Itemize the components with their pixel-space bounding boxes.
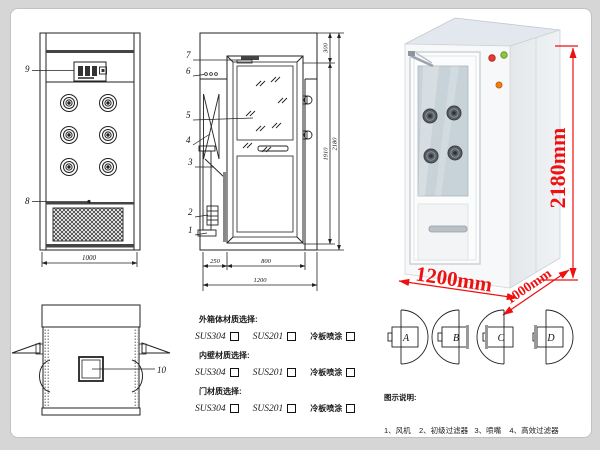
door-jamb [223, 172, 226, 242]
door-lower-panel [237, 156, 293, 232]
indicator-light-red [489, 55, 495, 61]
indicator-light-green [501, 52, 507, 58]
section-view-drawing: 250 800 1200 300 1910 2180 7 6 5 4 [183, 26, 347, 296]
swing-label-c: C [498, 333, 505, 344]
dim-800-label: 800 [261, 258, 272, 265]
nozzle [61, 127, 78, 144]
callout-1: 1 [188, 225, 193, 235]
dim-1910-label: 1910 [323, 147, 330, 161]
material-options-row: SUS304 SUS201 冷板喷涂 [195, 367, 388, 378]
material-group-label: 外箱体材质选择: [199, 314, 388, 325]
callout-4: 4 [186, 135, 191, 145]
nozzle [100, 95, 117, 112]
material-group-label: 内壁材质选择: [199, 350, 388, 361]
fan-unit [204, 94, 220, 159]
callout-10: 10 [157, 365, 167, 375]
top-trim-bar [46, 50, 134, 53]
base-trim-bar [46, 244, 134, 248]
checkbox [346, 332, 355, 341]
door-hinges [303, 96, 312, 139]
door-swing-options: A B C D [385, 302, 585, 366]
top-view-drawing: 10 [8, 296, 183, 430]
swing-label-d: D [546, 333, 555, 344]
indicator-lights [205, 73, 218, 76]
legend-title: 图示说明: [384, 392, 600, 403]
nozzle [100, 127, 117, 144]
material-option: 冷板喷涂 [310, 331, 342, 342]
photo-dim-height: 2180mm [545, 128, 570, 209]
material-group-label: 门材质选择: [199, 386, 388, 397]
callout-5: 5 [186, 110, 191, 120]
material-selection: 外箱体材质选择: SUS304 SUS201 冷板喷涂 内壁材质选择: SUS3… [193, 314, 388, 422]
nozzle [61, 95, 78, 112]
duct-line [205, 159, 225, 178]
dim-1000-label: 1000 [82, 254, 97, 262]
swing-label-a: A [402, 333, 410, 344]
side-wall-hatch [44, 328, 49, 407]
cabinet-body [43, 327, 139, 408]
material-option: 冷板喷涂 [310, 403, 342, 414]
front-view-drawing: 9 8 1000 [20, 26, 185, 274]
dim-250-label: 250 [210, 258, 221, 265]
checkbox [287, 332, 296, 341]
indicator-light-orange [496, 82, 502, 88]
spec-sheet: 9 8 1000 [0, 0, 600, 450]
callout-6: 6 [186, 66, 191, 76]
control-panel [74, 62, 107, 81]
dim-1200-label: 1200 [254, 277, 268, 284]
material-option: 冷板喷涂 [310, 367, 342, 378]
bottom-dimensions [203, 252, 317, 291]
material-option: SUS304 [195, 404, 226, 414]
checkbox [346, 368, 355, 377]
filter-box [207, 206, 218, 225]
material-option: SUS201 [253, 368, 284, 378]
material-option: SUS304 [195, 368, 226, 378]
callout-9: 9 [25, 64, 30, 74]
checkbox [287, 404, 296, 413]
nozzle [61, 159, 78, 176]
nozzle [100, 159, 117, 176]
swing-label-b: B [453, 333, 459, 344]
material-option: SUS201 [253, 404, 284, 414]
callout-7: 7 [186, 50, 191, 60]
product-photo: 2180mm 1200mm 1000mm [385, 8, 598, 330]
checkbox [346, 404, 355, 413]
legend-block: 图示说明: 1、风机 2、初级过滤器 3、喷嘴 4、高效过滤器 5、玻璃视窗 6… [384, 370, 600, 450]
material-options-row: SUS304 SUS201 冷板喷涂 [195, 403, 388, 414]
glass-hatching [243, 77, 287, 152]
door-handle [258, 146, 288, 151]
side-wall-hatch [133, 328, 138, 407]
glass-window [237, 66, 293, 140]
callout-3: 3 [187, 157, 193, 167]
nozzles [61, 95, 117, 176]
dim-2180-label: 2180 [332, 137, 339, 151]
checkbox [230, 332, 239, 341]
photo-door-handle [429, 226, 467, 232]
door-swing-option-b [432, 310, 469, 364]
material-option: SUS304 [195, 332, 226, 342]
door-swing-option-c [477, 310, 513, 364]
callout-2: 2 [188, 207, 193, 217]
callout-8: 8 [25, 196, 30, 206]
checkbox [287, 368, 296, 377]
checkbox [230, 404, 239, 413]
material-option: SUS201 [253, 332, 284, 342]
return-air-grille [53, 208, 123, 241]
plenum-box [42, 305, 140, 327]
base-band [42, 408, 140, 415]
dim-300-label: 300 [323, 42, 330, 54]
legend-line: 1、风机 2、初级过滤器 3、喷嘴 4、高效过滤器 [384, 425, 600, 436]
material-options-row: SUS304 SUS201 冷板喷涂 [195, 331, 388, 342]
checkbox [230, 368, 239, 377]
